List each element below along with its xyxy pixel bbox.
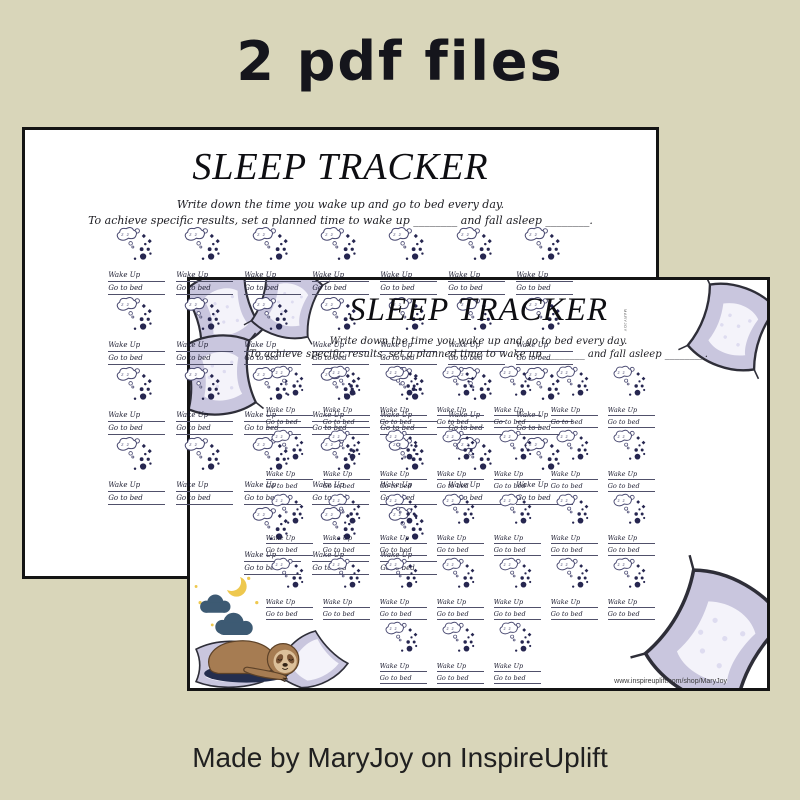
banner-title: 2 pdf files [0, 30, 800, 93]
wake-up-label: Wake Up [608, 406, 637, 414]
go-to-bed-label: Go to bed [494, 482, 526, 490]
go-to-bed-label: Go to bed [551, 418, 583, 426]
go-to-bed-line: Go to bed [380, 417, 428, 428]
go-to-bed-line: Go to bed [494, 673, 542, 684]
go-to-bed-line: Go to bed [551, 545, 599, 556]
sleeping-moon-icon [554, 428, 595, 468]
day-entry-cell: Wake Up Go to bed [434, 492, 488, 556]
go-to-bed-label: Go to bed [551, 546, 583, 554]
go-to-bed-label: Go to bed [494, 418, 526, 426]
wake-up-line: Wake Up [323, 469, 371, 480]
wake-up-label: Wake Up [380, 271, 412, 279]
wake-up-label: Wake Up [437, 662, 466, 670]
sleeping-moon-icon [383, 620, 424, 660]
day-entry-cell: Wake Up Go to bed [434, 620, 488, 684]
wake-up-line: Wake Up [380, 469, 428, 480]
go-to-bed-line: Go to bed [437, 417, 485, 428]
go-to-bed-label: Go to bed [380, 610, 412, 618]
go-to-bed-line: Go to bed [266, 545, 314, 556]
day-entry-cell: Wake Up Go to bed [605, 492, 659, 556]
wake-up-line: Wake Up [108, 340, 164, 352]
wake-up-line: Wake Up [437, 597, 485, 608]
day-entry-cell: Wake Up Go to bed [105, 225, 169, 295]
go-to-bed-line: Go to bed [266, 417, 314, 428]
wake-up-line: Wake Up [380, 597, 428, 608]
tracker-grid: Wake Up Go to bed Wake Up Go to bed Wake… [190, 364, 767, 684]
go-to-bed-line: Go to bed [108, 283, 164, 295]
go-to-bed-line: Go to bed [108, 423, 164, 435]
day-entry-cell: Wake Up Go to bed [377, 492, 431, 556]
go-to-bed-line: Go to bed [437, 481, 485, 492]
go-to-bed-label: Go to bed [516, 284, 550, 292]
sleeping-moon-icon [269, 364, 310, 404]
go-to-bed-label: Go to bed [380, 674, 412, 682]
go-to-bed-label: Go to bed [380, 418, 412, 426]
wake-up-line: Wake Up [266, 469, 314, 480]
day-entry-cell: Wake Up Go to bed [491, 620, 545, 684]
wake-up-line: Wake Up [448, 270, 504, 282]
day-entry-cell: Wake Up Go to bed [105, 295, 169, 365]
sleeping-moon-icon [269, 428, 310, 468]
go-to-bed-label: Go to bed [323, 482, 355, 490]
sleeping-moon-icon [440, 364, 481, 404]
wake-up-label: Wake Up [494, 470, 523, 478]
go-to-bed-label: Go to bed [323, 418, 355, 426]
go-to-bed-label: Go to bed [266, 610, 298, 618]
go-to-bed-label: Go to bed [266, 418, 298, 426]
go-to-bed-label: Go to bed [551, 482, 583, 490]
sleeping-moon-icon [611, 428, 652, 468]
wake-up-line: Wake Up [437, 533, 485, 544]
sleeping-moon-icon [269, 492, 310, 532]
wake-up-label: Wake Up [380, 406, 409, 414]
wake-up-line: Wake Up [323, 405, 371, 416]
wake-up-label: Wake Up [551, 406, 580, 414]
go-to-bed-label: Go to bed [494, 610, 526, 618]
wake-up-label: Wake Up [380, 662, 409, 670]
go-to-bed-line: Go to bed [608, 609, 656, 620]
go-to-bed-label: Go to bed [608, 418, 640, 426]
wake-up-line: Wake Up [494, 661, 542, 672]
wake-up-line: Wake Up [608, 533, 656, 544]
wake-up-line: Wake Up [437, 469, 485, 480]
sleeping-moon-icon [554, 364, 595, 404]
product-image: 2 pdf files SLEEP TRACKER Write down the… [0, 0, 800, 800]
go-to-bed-label: Go to bed [437, 674, 469, 682]
wake-up-label: Wake Up [437, 534, 466, 542]
wake-up-label: Wake Up [266, 406, 295, 414]
wake-up-line: Wake Up [108, 410, 164, 422]
go-to-bed-line: Go to bed [437, 673, 485, 684]
go-to-bed-label: Go to bed [323, 610, 355, 618]
day-entry-cell: Wake Up Go to bed [377, 556, 431, 620]
wake-up-line: Wake Up [380, 405, 428, 416]
wake-up-label: Wake Up [494, 662, 523, 670]
wake-up-label: Wake Up [266, 534, 295, 542]
wake-up-label: Wake Up [551, 598, 580, 606]
wake-up-label: Wake Up [608, 534, 637, 542]
go-to-bed-line: Go to bed [380, 609, 428, 620]
wake-up-line: Wake Up [516, 270, 572, 282]
wake-up-label: Wake Up [312, 271, 344, 279]
day-entry-cell: Wake Up Go to bed [377, 428, 431, 492]
wake-up-line: Wake Up [494, 597, 542, 608]
sleeping-moon-icon [114, 225, 159, 269]
wake-up-line: Wake Up [494, 469, 542, 480]
wake-up-line: Wake Up [323, 533, 371, 544]
day-entry-cell: Wake Up Go to bed [105, 435, 169, 505]
wake-up-line: Wake Up [108, 480, 164, 492]
go-to-bed-line: Go to bed [494, 417, 542, 428]
wake-up-line: Wake Up [266, 405, 314, 416]
go-to-bed-label: Go to bed [266, 546, 298, 554]
wake-up-line: Wake Up [266, 597, 314, 608]
sleeping-moon-icon [497, 556, 538, 596]
credit-caption: Made by MaryJoy on InspireUplift [0, 742, 800, 774]
wake-up-label: Wake Up [448, 271, 480, 279]
tracker-row: Wake Up Go to bed Wake Up Go to bed Wake… [263, 428, 659, 492]
day-entry-cell: Wake Up Go to bed [605, 428, 659, 492]
go-to-bed-label: Go to bed [608, 546, 640, 554]
day-entry-cell: Wake Up Go to bed [491, 428, 545, 492]
go-to-bed-label: Go to bed [608, 482, 640, 490]
wake-up-label: Wake Up [108, 411, 140, 419]
sleeping-moon-icon [383, 556, 424, 596]
go-to-bed-line: Go to bed [608, 545, 656, 556]
sleeping-moon-icon [114, 365, 159, 409]
sleeping-moon-icon [326, 428, 367, 468]
go-to-bed-label: Go to bed [176, 284, 210, 292]
wake-up-line: Wake Up [494, 533, 542, 544]
go-to-bed-line: Go to bed [551, 481, 599, 492]
go-to-bed-label: Go to bed [551, 610, 583, 618]
wake-up-line: Wake Up [380, 270, 436, 282]
day-entry-cell: Wake Up Go to bed [377, 364, 431, 428]
wake-up-line: Wake Up [108, 270, 164, 282]
wake-up-label: Wake Up [608, 598, 637, 606]
go-to-bed-line: Go to bed [323, 609, 371, 620]
day-entry-cell: Wake Up Go to bed [491, 556, 545, 620]
page-title: SLEEP TRACKER [190, 292, 767, 329]
shop-url: www.inspireuplift.com/shop/MaryJoy [614, 678, 727, 685]
day-entry-cell: Wake Up Go to bed [491, 492, 545, 556]
go-to-bed-line: Go to bed [494, 481, 542, 492]
wake-up-label: Wake Up [176, 271, 208, 279]
go-to-bed-label: Go to bed [108, 424, 142, 432]
wake-up-line: Wake Up [608, 469, 656, 480]
wake-up-label: Wake Up [551, 534, 580, 542]
go-to-bed-line: Go to bed [380, 481, 428, 492]
day-entry-cell: Wake Up Go to bed [320, 428, 374, 492]
wake-up-label: Wake Up [108, 481, 140, 489]
go-to-bed-line: Go to bed [108, 493, 164, 505]
sleeping-moon-icon [383, 428, 424, 468]
sleeping-moon-icon [182, 225, 227, 269]
day-entry-cell: Wake Up Go to bed [320, 556, 374, 620]
wake-up-label: Wake Up [323, 406, 352, 414]
go-to-bed-label: Go to bed [244, 284, 278, 292]
wake-up-label: Wake Up [437, 406, 466, 414]
wake-up-label: Wake Up [323, 534, 352, 542]
sleeping-moon-icon [440, 620, 481, 660]
go-to-bed-line: Go to bed [108, 353, 164, 365]
go-to-bed-line: Go to bed [323, 545, 371, 556]
sleeping-moon-icon [269, 556, 310, 596]
wake-up-line: Wake Up [380, 661, 428, 672]
go-to-bed-label: Go to bed [494, 674, 526, 682]
go-to-bed-label: Go to bed [380, 482, 412, 490]
wake-up-line: Wake Up [437, 661, 485, 672]
wake-up-line: Wake Up [176, 270, 232, 282]
day-entry-cell: Wake Up Go to bed [605, 556, 659, 620]
day-entry-cell: Wake Up Go to bed [434, 364, 488, 428]
sleeping-moon-icon [522, 225, 567, 269]
go-to-bed-line: Go to bed [494, 545, 542, 556]
go-to-bed-line: Go to bed [494, 609, 542, 620]
go-to-bed-label: Go to bed [380, 284, 414, 292]
wake-up-line: Wake Up [551, 533, 599, 544]
day-entry-cell: Wake Up Go to bed [263, 428, 317, 492]
go-to-bed-label: Go to bed [108, 284, 142, 292]
wake-up-line: Wake Up [551, 597, 599, 608]
instruction-line-1: Write down the time you wake up and go t… [25, 198, 656, 211]
sleeping-moon-icon [250, 225, 295, 269]
wake-up-label: Wake Up [494, 534, 523, 542]
day-entry-cell: Wake Up Go to bed [548, 492, 602, 556]
wake-up-line: Wake Up [608, 597, 656, 608]
day-entry-cell: Wake Up Go to bed [548, 556, 602, 620]
go-to-bed-line: Go to bed [266, 609, 314, 620]
sleeping-moon-icon [611, 556, 652, 596]
wake-up-label: Wake Up [108, 271, 140, 279]
day-entry-cell: Wake Up Go to bed [320, 492, 374, 556]
go-to-bed-label: Go to bed [108, 354, 142, 362]
go-to-bed-label: Go to bed [448, 284, 482, 292]
day-entry-cell: Wake Up Go to bed [445, 225, 509, 295]
page-title: SLEEP TRACKER [25, 145, 656, 189]
wake-up-line: Wake Up [312, 270, 368, 282]
sleeping-moon-icon [611, 364, 652, 404]
day-entry-cell: Wake Up Go to bed [320, 364, 374, 428]
sleeping-moon-icon [611, 492, 652, 532]
sleeping-moon-icon [497, 364, 538, 404]
wake-up-line: Wake Up [323, 597, 371, 608]
wake-up-label: Wake Up [551, 470, 580, 478]
wake-up-line: Wake Up [494, 405, 542, 416]
sleeping-moon-icon [386, 225, 431, 269]
wake-up-label: Wake Up [380, 534, 409, 542]
wake-up-label: Wake Up [323, 598, 352, 606]
go-to-bed-label: Go to bed [108, 494, 142, 502]
wake-up-label: Wake Up [266, 470, 295, 478]
sleeping-moon-icon [440, 556, 481, 596]
go-to-bed-line: Go to bed [266, 481, 314, 492]
day-entry-cell: Wake Up Go to bed [548, 364, 602, 428]
go-to-bed-label: Go to bed [494, 546, 526, 554]
sleeping-moon-icon [326, 492, 367, 532]
day-entry-cell: Wake Up Go to bed [173, 225, 237, 295]
go-to-bed-label: Go to bed [437, 546, 469, 554]
go-to-bed-line: Go to bed [608, 417, 656, 428]
day-entry-cell: Wake Up Go to bed [605, 364, 659, 428]
go-to-bed-line: Go to bed [437, 609, 485, 620]
go-to-bed-label: Go to bed [437, 418, 469, 426]
sleeping-moon-icon [114, 435, 159, 479]
sleeping-moon-icon [497, 620, 538, 660]
tracker-row: Wake Up Go to bed Wake Up Go to bed Wake… [263, 556, 659, 620]
sleeping-moon-icon [554, 492, 595, 532]
wake-up-label: Wake Up [266, 598, 295, 606]
go-to-bed-line: Go to bed [380, 673, 428, 684]
watermark: MARYJOY [623, 309, 628, 332]
sleeping-moon-icon [326, 556, 367, 596]
sleeping-moon-icon [114, 295, 159, 339]
day-entry-cell: Wake Up Go to bed [377, 225, 441, 295]
wake-up-line: Wake Up [380, 533, 428, 544]
wake-up-label: Wake Up [380, 598, 409, 606]
go-to-bed-line: Go to bed [437, 545, 485, 556]
go-to-bed-line: Go to bed [551, 417, 599, 428]
wake-up-line: Wake Up [608, 405, 656, 416]
page-header: SLEEP TRACKER Write down the time you wa… [25, 145, 656, 227]
wake-up-line: Wake Up [437, 405, 485, 416]
go-to-bed-line: Go to bed [608, 481, 656, 492]
wake-up-label: Wake Up [380, 470, 409, 478]
tracker-row: Wake Up Go to bed Wake Up Go to bed Wake… [377, 620, 545, 684]
day-entry-cell: Wake Up Go to bed [548, 428, 602, 492]
wake-up-label: Wake Up [494, 598, 523, 606]
day-entry-cell: Wake Up Go to bed [491, 364, 545, 428]
wake-up-label: Wake Up [323, 470, 352, 478]
day-entry-cell: Wake Up Go to bed [434, 556, 488, 620]
go-to-bed-label: Go to bed [437, 610, 469, 618]
wake-up-label: Wake Up [608, 470, 637, 478]
sleeping-moon-icon [440, 428, 481, 468]
sleeping-moon-icon [440, 492, 481, 532]
go-to-bed-label: Go to bed [323, 546, 355, 554]
go-to-bed-label: Go to bed [437, 482, 469, 490]
wake-up-line: Wake Up [551, 469, 599, 480]
wake-up-label: Wake Up [244, 271, 276, 279]
sleeping-moon-icon [318, 225, 363, 269]
day-entry-cell: Wake Up Go to bed [513, 225, 577, 295]
go-to-bed-line: Go to bed [323, 481, 371, 492]
wake-up-label: Wake Up [108, 341, 140, 349]
day-entry-cell: Wake Up Go to bed [377, 620, 431, 684]
wake-up-label: Wake Up [437, 470, 466, 478]
sleeping-moon-icon [383, 364, 424, 404]
day-entry-cell: Wake Up Go to bed [434, 428, 488, 492]
sleeping-moon-icon [497, 428, 538, 468]
go-to-bed-label: Go to bed [608, 610, 640, 618]
wake-up-line: Wake Up [266, 533, 314, 544]
sleeping-moon-icon [326, 364, 367, 404]
tracker-row: Wake Up Go to bed Wake Up Go to bed Wake… [263, 364, 659, 428]
wake-up-label: Wake Up [516, 271, 548, 279]
page-header: SLEEP TRACKER Write down the time you wa… [190, 292, 767, 360]
day-entry-cell: Wake Up Go to bed [105, 365, 169, 435]
instruction-line-1: Write down the time you wake up and go t… [190, 336, 767, 347]
wake-up-label: Wake Up [494, 406, 523, 414]
sleeping-moon-icon [383, 492, 424, 532]
tracker-row: Wake Up Go to bed Wake Up Go to bed Wake… [263, 492, 659, 556]
front-pdf-page: SLEEP TRACKER Write down the time you wa… [187, 277, 770, 691]
go-to-bed-label: Go to bed [312, 284, 346, 292]
go-to-bed-line: Go to bed [323, 417, 371, 428]
sleeping-moon-icon [454, 225, 499, 269]
day-entry-cell: Wake Up Go to bed [309, 225, 373, 295]
instruction-line-2: To achieve specific results, set a plann… [190, 349, 767, 360]
day-entry-cell: Wake Up Go to bed [263, 556, 317, 620]
day-entry-cell: Wake Up Go to bed [263, 364, 317, 428]
day-entry-cell: Wake Up Go to bed [263, 492, 317, 556]
day-entry-cell: Wake Up Go to bed [241, 225, 305, 295]
go-to-bed-line: Go to bed [551, 609, 599, 620]
tracker-row: Wake Up Go to bed Wake Up Go to bed Wake… [105, 225, 577, 295]
wake-up-line: Wake Up [244, 270, 300, 282]
go-to-bed-line: Go to bed [380, 545, 428, 556]
go-to-bed-label: Go to bed [380, 546, 412, 554]
go-to-bed-label: Go to bed [266, 482, 298, 490]
wake-up-line: Wake Up [551, 405, 599, 416]
wake-up-label: Wake Up [437, 598, 466, 606]
sleeping-moon-icon [554, 556, 595, 596]
sleeping-moon-icon [497, 492, 538, 532]
